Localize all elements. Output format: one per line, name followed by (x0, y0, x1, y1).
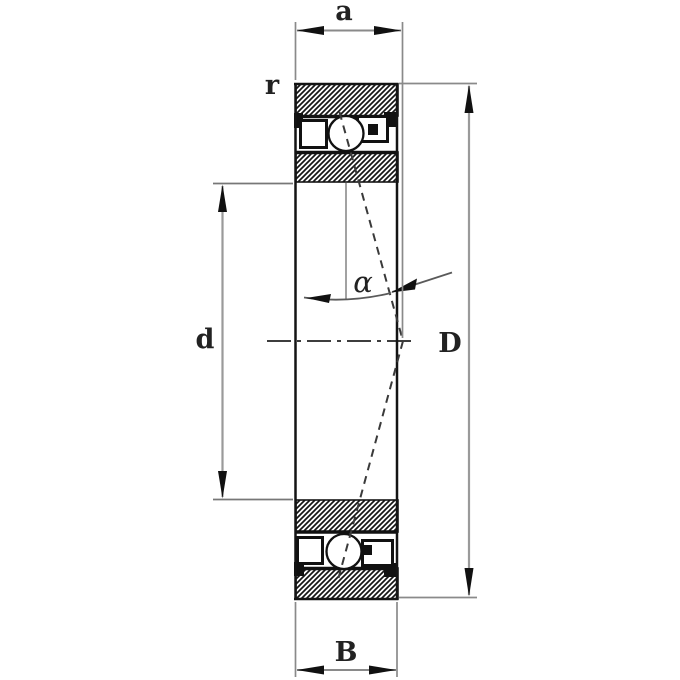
ball-bottom (327, 534, 362, 569)
dim-D-label: D (438, 328, 461, 359)
inner-ring-bottom-hatch (296, 500, 398, 532)
dim-D-arrow-up (465, 85, 474, 114)
alpha-label: α (353, 265, 373, 299)
cage-bottom-right-land (363, 545, 372, 555)
dim-d-label: d (196, 324, 215, 355)
dim-B-arrow-left (297, 666, 325, 675)
dimension-B: B (296, 602, 398, 677)
dim-D-arrow-down (465, 568, 474, 597)
dim-a-arrow-right (374, 26, 402, 35)
bearing-drawing-canvas: α a r d D B (0, 0, 680, 680)
bearing-drawing: α a r d D B (0, 0, 680, 680)
dim-B-arrow-right (369, 666, 397, 675)
dim-a-arrow-left (297, 26, 325, 35)
alpha-arrow-left (306, 294, 331, 303)
outer-ring-bottom-hatch (296, 568, 398, 599)
dim-a-label: a (335, 0, 353, 27)
cage-bottom-left (298, 538, 323, 564)
cage-top-right-land (368, 124, 378, 135)
contact-line-upper (340, 112, 404, 341)
dim-d-arrow-up (218, 185, 227, 213)
alpha-dimension: α (304, 183, 452, 303)
cage-top-left (301, 121, 327, 148)
dim-d-arrow-down (218, 471, 227, 499)
dim-B-label: B (335, 637, 358, 668)
dim-r-label: r (265, 70, 280, 101)
inner-ring-top-hatch (296, 152, 398, 182)
outer-ring-top-hatch (296, 84, 398, 116)
ball-top (329, 116, 364, 151)
